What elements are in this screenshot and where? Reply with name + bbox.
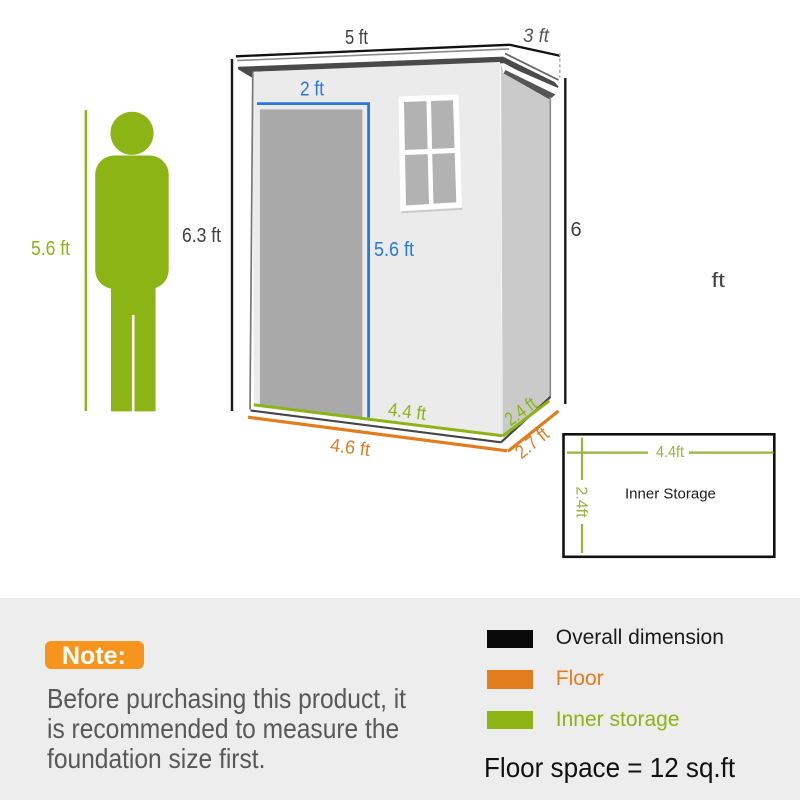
svg-text:ft: ft xyxy=(712,270,726,292)
svg-text:2.4ft: 2.4ft xyxy=(573,486,590,518)
svg-text:5 ft: 5 ft xyxy=(345,27,368,49)
svg-text:3 ft: 3 ft xyxy=(523,26,550,47)
svg-text:4.6 ft: 4.6 ft xyxy=(329,435,372,461)
svg-text:5.6 ft: 5.6 ft xyxy=(31,238,70,260)
svg-text:2.7 ft: 2.7 ft xyxy=(511,423,553,463)
svg-text:5.6 ft: 5.6 ft xyxy=(374,239,414,261)
svg-text:4.4ft: 4.4ft xyxy=(656,444,685,461)
svg-text:Inner Storage: Inner Storage xyxy=(625,486,716,503)
svg-text:2 ft: 2 ft xyxy=(300,79,324,101)
svg-text:6.3 ft: 6.3 ft xyxy=(182,225,221,247)
svg-text:6: 6 xyxy=(571,219,582,241)
